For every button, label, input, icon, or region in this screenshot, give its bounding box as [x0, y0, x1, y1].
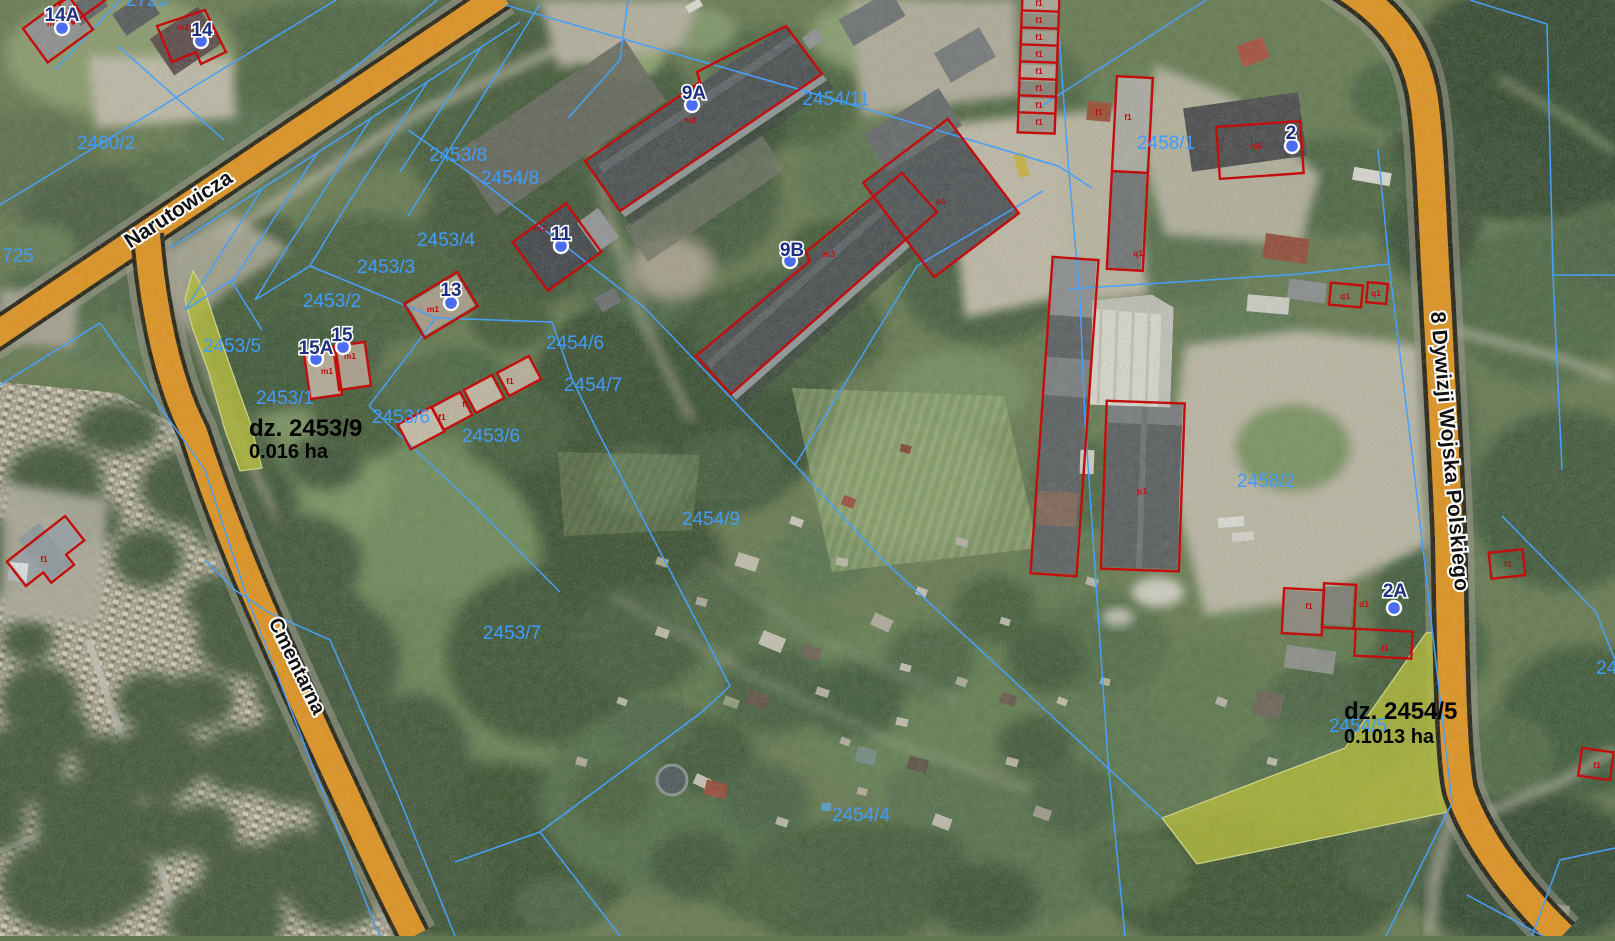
svg-text:m1: m1	[321, 366, 334, 376]
svg-text:dz. 2454/5: dz. 2454/5	[1344, 698, 1457, 725]
svg-text:p1: p1	[936, 196, 946, 206]
svg-text:2453/7: 2453/7	[483, 623, 541, 644]
svg-text:f1: f1	[1035, 66, 1043, 76]
svg-text:15: 15	[331, 325, 353, 346]
svg-text:f1: f1	[1305, 601, 1313, 611]
svg-text:2453/6: 2453/6	[372, 407, 430, 428]
svg-text:f1: f1	[1593, 760, 1601, 770]
svg-text:14A: 14A	[45, 5, 80, 26]
svg-text:f1: f1	[1035, 49, 1043, 59]
svg-text:2460/2: 2460/2	[77, 133, 135, 154]
svg-text:f1: f1	[462, 399, 470, 409]
svg-text:f1: f1	[1035, 117, 1043, 127]
svg-text:2454/7: 2454/7	[564, 375, 622, 396]
svg-text:m5: m5	[1250, 141, 1263, 151]
svg-text:dz. 2453/9: dz. 2453/9	[249, 415, 362, 442]
svg-text:q1: q1	[1340, 291, 1350, 301]
svg-text:f1: f1	[438, 412, 446, 422]
svg-text:2458/1: 2458/1	[1137, 133, 1195, 154]
svg-text:f1: f1	[1124, 112, 1132, 122]
svg-text:f1: f1	[1381, 643, 1389, 653]
svg-text:m2: m2	[177, 22, 190, 32]
svg-text:11: 11	[551, 224, 572, 245]
svg-text:f1: f1	[1504, 559, 1512, 569]
svg-text:f1: f1	[1035, 15, 1043, 25]
svg-text:f1: f1	[506, 376, 514, 386]
svg-text:725: 725	[2, 246, 34, 267]
svg-text:2454/4: 2454/4	[832, 805, 891, 826]
svg-text:f1: f1	[1035, 83, 1043, 93]
svg-text:15A: 15A	[299, 338, 334, 359]
svg-text:2453/4: 2453/4	[417, 230, 476, 251]
svg-text:245: 245	[1596, 658, 1615, 679]
svg-text:f1: f1	[40, 554, 48, 564]
svg-text:2726: 2726	[126, 0, 168, 11]
svg-text:13: 13	[440, 280, 461, 301]
svg-text:f1: f1	[1095, 107, 1103, 117]
svg-text:9B: 9B	[780, 240, 804, 261]
svg-text:m3: m3	[823, 249, 836, 259]
svg-text:q1: q1	[1133, 248, 1143, 258]
svg-text:f1: f1	[1035, 32, 1043, 42]
svg-text:2454/11: 2454/11	[802, 89, 869, 110]
svg-text:2454/9: 2454/9	[682, 509, 740, 530]
svg-text:f1: f1	[1035, 0, 1043, 8]
svg-text:2453/5: 2453/5	[203, 336, 261, 357]
svg-text:2458/2: 2458/2	[1237, 471, 1295, 492]
svg-text:14: 14	[191, 20, 213, 41]
svg-text:d1: d1	[1359, 599, 1369, 609]
svg-text:2A: 2A	[1383, 581, 1408, 602]
svg-text:2: 2	[1286, 123, 1297, 144]
svg-text:0.016 ha: 0.016 ha	[249, 441, 329, 463]
svg-text:2453/1: 2453/1	[256, 388, 314, 409]
svg-text:f1: f1	[1035, 100, 1043, 110]
svg-text:2453/6: 2453/6	[462, 426, 520, 447]
svg-text:m3: m3	[684, 115, 697, 125]
svg-text:2454/8: 2454/8	[481, 168, 539, 189]
svg-text:2453/8: 2453/8	[429, 145, 487, 166]
svg-text:2454/6: 2454/6	[546, 333, 604, 354]
svg-text:2453/2: 2453/2	[303, 291, 361, 312]
svg-text:0.1013 ha: 0.1013 ha	[1344, 726, 1435, 748]
svg-text:2453/3: 2453/3	[357, 257, 415, 278]
svg-text:9A: 9A	[682, 83, 707, 104]
svg-text:m1: m1	[534, 223, 547, 233]
svg-text:m1: m1	[427, 304, 440, 314]
svg-text:q1: q1	[1371, 288, 1381, 298]
svg-text:p1: p1	[1137, 486, 1147, 496]
